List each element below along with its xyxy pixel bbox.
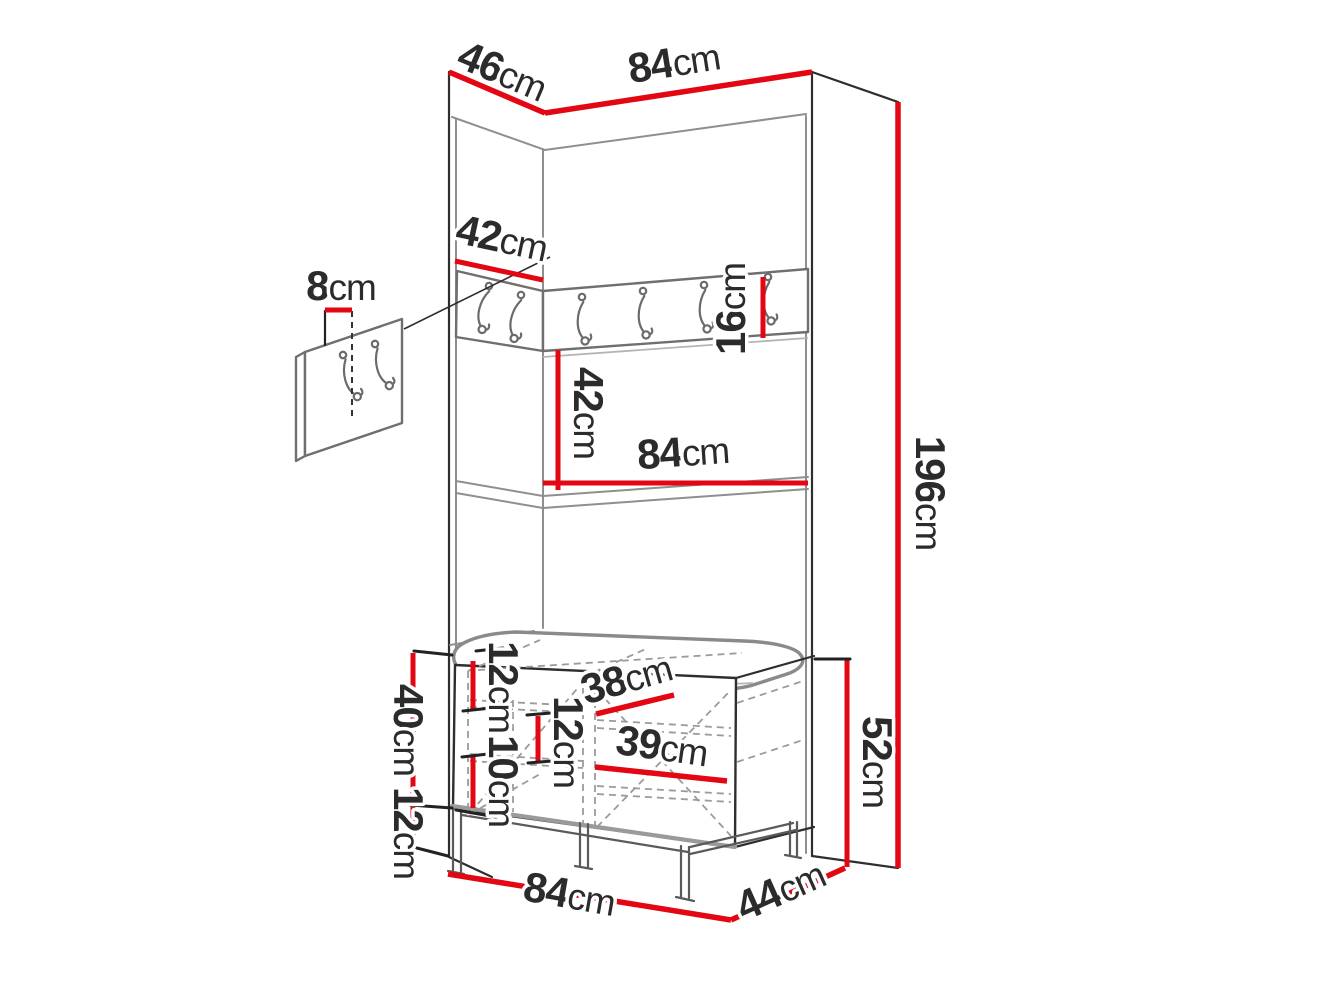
frame-inner-top-edge — [452, 114, 806, 150]
dim-label-mid-width: 84cm — [635, 425, 730, 478]
panel-side-face — [296, 352, 305, 461]
dim-label-top-width: 84cm — [625, 31, 723, 92]
hook-rail — [456, 269, 808, 357]
furniture-dimension-diagram: 46cm 84cm 42cm 8cm 16cm 42cm 84cm 196cm … — [0, 0, 1320, 990]
dim-label-bench-top-gap: 12cm — [480, 641, 527, 733]
dim-label-rail-depth: 42cm — [452, 205, 552, 270]
dim-label-rail-height: 16cm — [707, 263, 754, 355]
dim-label-wall-panel-width: 8cm — [306, 262, 376, 309]
hook-rail-left-panel — [456, 271, 543, 351]
dim-label-total-height: 196cm — [907, 436, 954, 550]
frame-top-back-diagonal — [812, 72, 898, 102]
dim-label-bench-mid-gap: 12cm — [545, 696, 592, 788]
frame-bottom-back-diagonal — [812, 856, 898, 868]
dim-label-bench-width: 84cm — [520, 863, 619, 925]
bench-leg — [785, 822, 801, 858]
bench-side-bottom-edge — [735, 827, 814, 847]
bench-leg — [448, 809, 464, 874]
shelf-bottom-edge — [456, 489, 808, 508]
dim-label-mid-height: 42cm — [565, 367, 612, 459]
bench-leg — [575, 823, 592, 869]
dim-label-top-depth: 46cm — [451, 31, 554, 110]
dim-label-bench-total-height: 52cm — [854, 716, 901, 808]
dim-label-bench-bottom-gap: 10cm — [480, 735, 527, 827]
dim-label-bench-body-height: 40cm — [385, 684, 432, 776]
dim-label-bench-depth: 44cm — [728, 850, 831, 930]
dim-label-leg-height: 12cm — [385, 787, 432, 879]
